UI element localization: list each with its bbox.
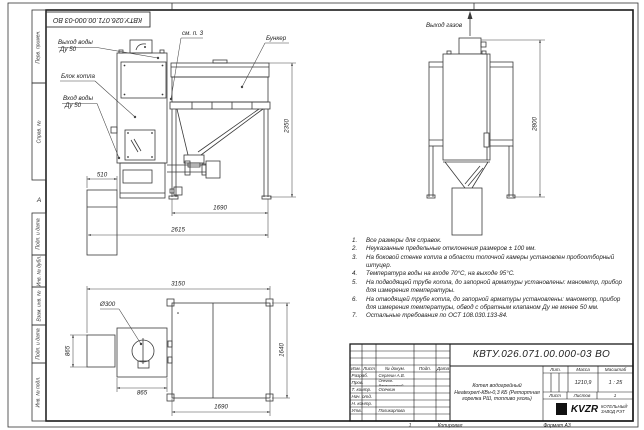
stamp-label: Инв. № подл. (36, 376, 42, 407)
label-water-outlet-line1: Выход воды (58, 39, 93, 46)
note-number: 7. (352, 312, 366, 320)
note-text: Неуказанные предельные отклонения размер… (366, 245, 624, 253)
note-item: 6.На отводящей трубе котла, до запорной … (352, 296, 624, 313)
label-see-note: см. п. 3 (182, 30, 203, 37)
margin-stamp-inv-dubl: Инв. № дубл. (32, 255, 46, 287)
company-logo-mark (556, 403, 567, 415)
dim-2615: 2615 (171, 227, 185, 234)
label-water-outlet-line2: Ду 50 (58, 46, 93, 53)
product-name-line2: Heatexpert-КВн-0,3 КБ (Ретортная (454, 390, 540, 397)
note-item: 1.Все размеры для справок. (352, 237, 624, 245)
col-header-data: Дата (436, 365, 450, 372)
product-name-line1: Котел водогрейный (472, 383, 521, 390)
scale-label: Масштаб (598, 366, 633, 373)
label-water-outlet: Выход воды Ду 50 (58, 39, 93, 53)
sheets-label: Листов (567, 392, 597, 399)
dim-2800: 2800 (532, 117, 539, 131)
label-gas-outlet: Выход газов (426, 22, 462, 29)
scale-value: 1 : 25 (598, 373, 633, 392)
margin-stamp-vzam-inv: Взам. инв. № (32, 287, 46, 325)
note-text: На подводящей трубе котла, до запорной а… (366, 279, 624, 296)
dim-3150: 3150 (171, 281, 185, 288)
copy-index: 1 (405, 422, 415, 429)
top-view-linework (87, 299, 273, 401)
note-item: 5.На подводящей трубе котла, до запорной… (352, 279, 624, 296)
product-name-line3: горелка РШ, топливо уголь) (462, 396, 532, 403)
label-boiler-block: Блок котла (61, 73, 95, 80)
note-number: 4. (352, 270, 366, 278)
margin-stamp-perv-primen: Перв. примен. (32, 10, 46, 83)
sheets-value: 1 (597, 392, 633, 399)
note-item: 4.Температура воды на входе 70°С, на вых… (352, 270, 624, 278)
label-water-inlet: Вход воды Ду 50 (63, 95, 93, 109)
title-block-doc-number: КВТУ.026.071.00.000-03 ВО (451, 345, 632, 364)
stamp-label: Перв. примен. (36, 30, 42, 63)
note-text: Остальные требования по ОСТ 108.030.133-… (366, 312, 624, 320)
corner-doc-number: КВТУ.026.071.00.000-03 ВО (53, 16, 142, 23)
format-label: Формат А3 (540, 422, 574, 429)
corner-stamp: КВТУ.026.071.00.000-03 ВО (46, 12, 150, 27)
role-t-kontr: Т. контр. (350, 386, 378, 393)
stamp-label: Инв. № дубл. (36, 256, 42, 287)
label-diameter-300: Ø300 (100, 301, 115, 308)
col-header-podp: Подп. (414, 365, 436, 372)
dim-865-bottom: 865 (137, 390, 147, 397)
dim-1690-top: 1690 (214, 404, 228, 411)
label-water-inlet-line2: Ду 50 (63, 102, 93, 109)
mass-value: 1210,9 (568, 373, 598, 392)
stamp-label: Подп. и дата (36, 328, 42, 359)
margin-stamp-podp-data-1: Подп. и дата (32, 213, 46, 255)
mass-label: Масса (568, 366, 598, 373)
company-name: КОТЕЛЬНЫЙ ЗАВОД РЭТ (601, 404, 627, 415)
name-nach-otd (377, 393, 416, 400)
name-razrab: Сергеин А.В. (377, 372, 416, 379)
product-name: Котел водогрейный Heatexpert-КВн-0,3 КБ … (452, 367, 542, 419)
lit-label: Лит. (543, 366, 568, 373)
dim-1690-front: 1690 (213, 205, 227, 212)
note-number: 5. (352, 279, 366, 296)
dim-510: 510 (97, 172, 107, 179)
role-nach-otd: Нач. отд. (350, 393, 378, 400)
stamp-label: Подп. и дата (36, 218, 42, 249)
note-number: 2. (352, 245, 366, 253)
note-text: Температура воды на входе 70°С, на выход… (366, 270, 624, 278)
label-water-inlet-line1: Вход воды (63, 95, 93, 102)
zone-marker: А (34, 197, 44, 204)
note-text: Все размеры для справок. (366, 237, 624, 245)
col-header-doc: № докум. (376, 365, 414, 372)
margin-stamp-inv-podl: Инв. № подл. (32, 363, 46, 421)
note-text: На отводящей трубе котла, до запорной ар… (366, 296, 624, 313)
note-item: 7.Остальные требования по ОСТ 108.030.13… (352, 312, 624, 320)
note-number: 3. (352, 254, 366, 271)
dim-2350: 2350 (284, 119, 291, 133)
stamp-label: Взам. инв. № (36, 291, 42, 322)
drawing-sheet: КВТУ.026.071.00.000-03 ВО Перв. примен. … (0, 0, 644, 430)
note-text: На боковой стенке котла в области топочн… (366, 254, 624, 271)
name-utv: Поликарпова (377, 407, 416, 414)
col-header-list: Лист (362, 365, 376, 372)
role-n-kontr: Н. контр. (350, 400, 378, 407)
technical-notes: 1.Все размеры для справок. 2.Неуказанные… (352, 237, 624, 321)
role-razrab: Разраб. (350, 372, 378, 379)
dim-865-left: 865 (65, 346, 72, 356)
company-name-line2: ЗАВОД РЭТ (601, 409, 627, 414)
stamp-label: Справ. № (36, 120, 42, 143)
label-hopper: Бункер (266, 35, 286, 42)
sheet-label: Лист (543, 392, 567, 399)
role-prov: Пров. (350, 379, 378, 386)
margin-stamp-podp-data-2: Подп. и дата (32, 325, 46, 363)
dim-1640: 1640 (279, 343, 286, 357)
margin-stamp-sprav-no: Справ. № (32, 83, 46, 180)
name-prov: Онегов-Верещинский (377, 379, 416, 386)
note-item: 3.На боковой стенке котла в области топо… (352, 254, 624, 271)
note-item: 2.Неуказанные предельные отклонения разм… (352, 245, 624, 253)
name-n-kontr (377, 400, 416, 407)
note-number: 6. (352, 296, 366, 313)
role-utv: Утв. (350, 407, 378, 414)
name-t-kontr: Осечкин (377, 386, 416, 393)
col-header-izm: Изм. (350, 365, 362, 372)
company-logo-text: KVZR (568, 401, 601, 417)
note-number: 1. (352, 237, 366, 245)
side-view-linework (427, 11, 515, 235)
copied-label: Копировал (430, 422, 470, 429)
